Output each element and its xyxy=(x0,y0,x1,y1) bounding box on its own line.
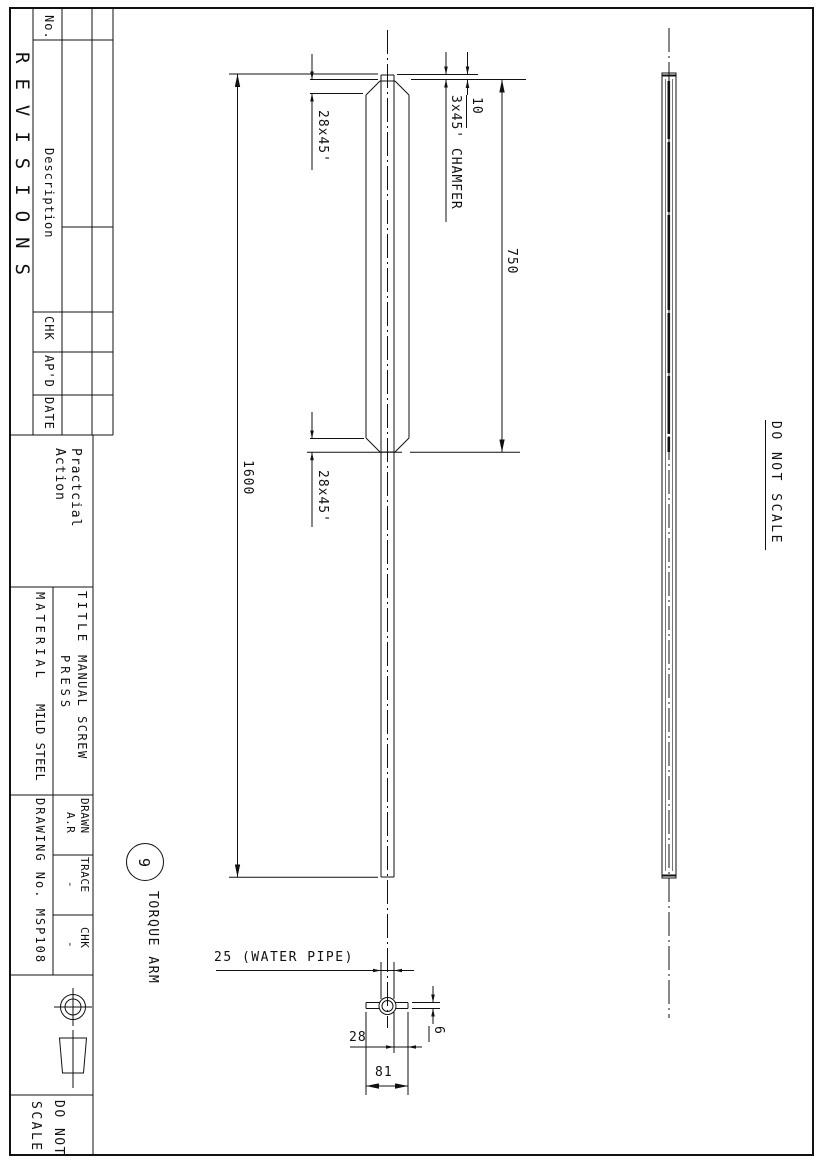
revisions-title: REVISIONS xyxy=(11,52,31,290)
title-value-line2: PRESS xyxy=(58,655,71,711)
dim-10: 10 xyxy=(469,97,483,115)
dim-bar-width: 28 xyxy=(349,1031,367,1045)
dim-bar-thickness: 6 xyxy=(431,1026,445,1035)
dim-overall-width: 81 xyxy=(375,1066,393,1080)
material-value: MILD STEEL xyxy=(33,704,46,781)
sheet-border xyxy=(10,8,813,1155)
trace-label: TRACE xyxy=(78,857,90,893)
title-block-lines xyxy=(10,435,93,1155)
dim-leader-lines xyxy=(216,52,766,1047)
dim-750: 750 xyxy=(504,248,518,274)
revisions-col-chk: CHK xyxy=(42,316,55,341)
revisions-col-no: No. xyxy=(42,15,55,40)
drawing-linework xyxy=(0,0,826,1169)
company-name-line1: Practcial xyxy=(68,448,82,527)
material-label: MATERIAL xyxy=(33,592,46,682)
end-chamfer-note: 3x45' CHAMFER xyxy=(448,95,462,210)
title-label: TITLE xyxy=(75,591,88,645)
drawn-value: A.R xyxy=(64,812,76,833)
outside-arrowheads xyxy=(310,67,469,1049)
dim-chamfer-left: 28x45' xyxy=(315,110,329,163)
balloon-label: TORQUE ARM xyxy=(145,891,159,984)
revisions-col-description: Description xyxy=(42,148,55,238)
chk-value: - xyxy=(64,941,76,948)
dim-1600: 1600 xyxy=(240,460,254,495)
scale-box-line1: DO NOT xyxy=(51,1100,65,1156)
drawn-label: DRAWN xyxy=(78,798,90,834)
extension-lines xyxy=(229,74,526,1095)
revisions-col-apd: AP'D xyxy=(42,355,55,388)
revisions-col-date: DATE xyxy=(42,397,55,430)
landscape-canvas: REVISIONS No. Description CHK AP'D DATE … xyxy=(0,0,826,1169)
trace-value: - xyxy=(64,881,76,888)
drawing-number: DRAWING No. MSP108 xyxy=(33,798,46,964)
title-value-line1: MANUAL SCREW xyxy=(75,655,88,760)
do-not-scale-note: DO NOT SCALE xyxy=(768,421,782,545)
projection-symbol xyxy=(54,988,92,1088)
dim-chamfer-right: 28x45' xyxy=(315,470,329,523)
balloon-number: 9 xyxy=(135,844,153,881)
drawing-sheet: REVISIONS No. Description CHK AP'D DATE … xyxy=(0,0,826,1169)
scale-box-line2: SCALE xyxy=(28,1101,42,1153)
company-name-line2: Action xyxy=(52,448,66,501)
dim-pipe-size: 25 (WATER PIPE) xyxy=(214,951,354,965)
chk-label: CHK xyxy=(78,927,90,948)
